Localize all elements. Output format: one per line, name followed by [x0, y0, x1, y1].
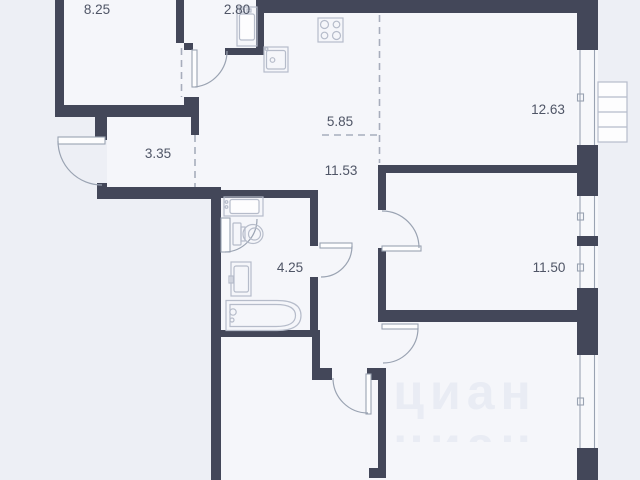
wall-segment: [55, 105, 199, 117]
floor-mid-band: [211, 199, 577, 310]
wall-segment: [184, 43, 193, 50]
floor-plan-svg: циан циан: [0, 0, 640, 480]
room-label-3-35: 3.35: [145, 146, 171, 161]
door-leaf: [366, 374, 371, 414]
room-label-12-63: 12.63: [531, 102, 565, 117]
wall-segment: [310, 277, 318, 337]
window: [577, 196, 598, 236]
wall-segment: [378, 310, 577, 322]
wall-segment: [184, 97, 199, 107]
wall-segment: [191, 117, 199, 135]
windows: [577, 50, 627, 448]
door-leaf: [58, 137, 105, 144]
balcony-unit-icon: [598, 82, 627, 142]
door-leaf: [221, 218, 230, 252]
floor-plan: циан циан: [0, 0, 640, 480]
door-leaf: [382, 324, 418, 329]
watermark-text: циан: [393, 364, 536, 420]
room-label-2-80: 2.80: [224, 2, 250, 17]
window: [577, 246, 598, 288]
wall-segment: [577, 236, 598, 246]
wall-segment: [55, 0, 64, 117]
wall-segment: [378, 165, 577, 173]
wall-segment: [312, 368, 332, 380]
door-leaf: [382, 246, 421, 251]
wall-segment: [378, 368, 386, 477]
room-label-11-53: 11.53: [325, 163, 358, 178]
wall-segment: [310, 190, 318, 246]
washer-dryer-icon: [224, 197, 263, 216]
wall-segment: [176, 0, 184, 43]
window: [577, 50, 598, 145]
wall-segment: [577, 0, 598, 50]
wall-segment: [577, 448, 598, 480]
floor-room-8-25: [64, 0, 176, 105]
entrance-door: [58, 137, 105, 185]
room-label-8-25: 8.25: [84, 2, 110, 17]
wall-segment: [97, 187, 221, 199]
window: [577, 355, 598, 448]
floor-hall-band: [176, 43, 577, 199]
wall-segment: [264, 0, 598, 13]
room-label-11-50: 11.50: [533, 260, 566, 275]
door-arc: [58, 141, 102, 185]
wall-segment: [312, 337, 320, 368]
room-label-4-25: 4.25: [277, 260, 303, 275]
wall-segment: [577, 145, 598, 196]
wall-segment: [225, 48, 264, 55]
door-leaf: [192, 50, 197, 87]
door-leaf: [320, 243, 352, 248]
wall-segment: [369, 468, 386, 478]
room-label-5-85: 5.85: [327, 114, 353, 129]
wall-segment: [577, 288, 598, 355]
